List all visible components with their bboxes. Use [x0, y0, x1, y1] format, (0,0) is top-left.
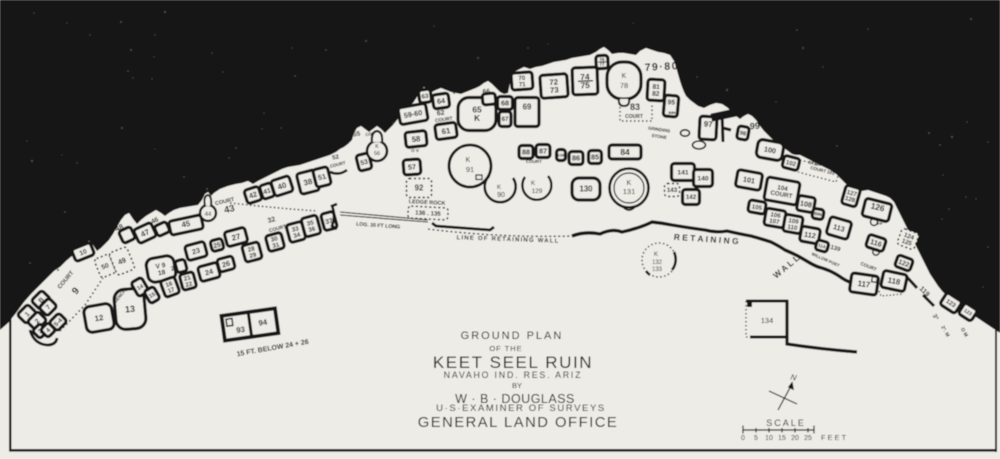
svg-text:66: 66: [482, 88, 490, 96]
svg-text:K: K: [466, 157, 471, 164]
svg-text:5: 5: [754, 435, 758, 442]
svg-text:K: K: [497, 184, 502, 191]
svg-text:0: 0: [741, 435, 745, 442]
svg-text:57: 57: [408, 162, 417, 172]
svg-text:13: 13: [125, 304, 136, 315]
svg-text:K: K: [474, 113, 480, 123]
svg-text:U·S·EXAMINER OF SURVEYS: U·S·EXAMINER OF SURVEYS: [436, 403, 606, 414]
svg-text:130: 130: [579, 185, 593, 194]
svg-text:85: 85: [591, 153, 599, 162]
svg-text:67: 67: [502, 116, 509, 123]
svg-text:132: 132: [652, 260, 663, 266]
svg-text:88: 88: [522, 148, 530, 157]
svg-text:91: 91: [466, 165, 474, 174]
svg-text:10: 10: [765, 435, 773, 442]
svg-text:FEET: FEET: [821, 433, 848, 442]
svg-text:84: 84: [620, 147, 630, 157]
svg-text:25: 25: [804, 435, 812, 442]
svg-text:K: K: [531, 180, 536, 187]
svg-text:71: 71: [519, 81, 527, 89]
svg-text:83: 83: [630, 102, 640, 112]
svg-text:K: K: [654, 251, 659, 258]
svg-text:131: 131: [623, 187, 636, 196]
svg-text:117: 117: [857, 279, 871, 290]
svg-text:64: 64: [436, 96, 445, 106]
svg-text:79·80: 79·80: [644, 60, 679, 74]
svg-text:90: 90: [497, 192, 505, 199]
svg-text:95: 95: [667, 99, 675, 107]
svg-text:141: 141: [677, 169, 688, 176]
svg-text:58: 58: [411, 134, 421, 144]
svg-text:COURT: COURT: [625, 114, 643, 120]
svg-text:142: 142: [686, 194, 697, 201]
svg-text:134: 134: [761, 316, 774, 325]
svg-text:NAVAHO IND. RES. ARIZ: NAVAHO IND. RES. ARIZ: [444, 370, 583, 380]
svg-text:77: 77: [600, 62, 606, 67]
svg-text:73: 73: [550, 85, 560, 95]
svg-text:143: 143: [667, 187, 678, 194]
svg-text:15: 15: [778, 435, 786, 442]
svg-text:136 . 135: 136 . 135: [415, 210, 442, 218]
svg-text:K: K: [622, 73, 627, 80]
svg-text:BIN: BIN: [669, 110, 676, 115]
svg-text:O V: O V: [411, 148, 419, 153]
svg-text:133: 133: [652, 267, 663, 273]
svg-text:K: K: [375, 144, 379, 150]
svg-text:56: 56: [374, 151, 380, 157]
svg-text:98: 98: [739, 130, 746, 137]
svg-text:82: 82: [652, 91, 660, 98]
svg-text:GROUND PLAN: GROUND PLAN: [461, 330, 564, 342]
svg-text:69: 69: [523, 103, 532, 112]
svg-text:20: 20: [791, 435, 799, 442]
svg-text:129: 129: [532, 188, 543, 195]
svg-text:18: 18: [157, 269, 166, 277]
svg-text:SCALE: SCALE: [766, 418, 806, 428]
svg-text:COURT: COURT: [526, 159, 542, 164]
svg-text:13B: 13B: [557, 152, 564, 157]
svg-text:44: 44: [205, 212, 212, 218]
svg-text:68: 68: [501, 99, 509, 108]
svg-text:97: 97: [704, 119, 714, 128]
svg-text:99: 99: [750, 121, 761, 132]
svg-text:86: 86: [572, 154, 580, 163]
svg-text:140: 140: [697, 175, 708, 182]
svg-text:BY: BY: [512, 381, 522, 390]
svg-text:92: 92: [415, 184, 424, 193]
svg-text:OF THE: OF THE: [489, 344, 522, 353]
svg-text:78: 78: [620, 81, 628, 90]
svg-text:K: K: [627, 180, 632, 187]
svg-text:GENERAL LAND OFFICE: GENERAL LAND OFFICE: [418, 415, 619, 431]
svg-text:87: 87: [539, 147, 547, 156]
